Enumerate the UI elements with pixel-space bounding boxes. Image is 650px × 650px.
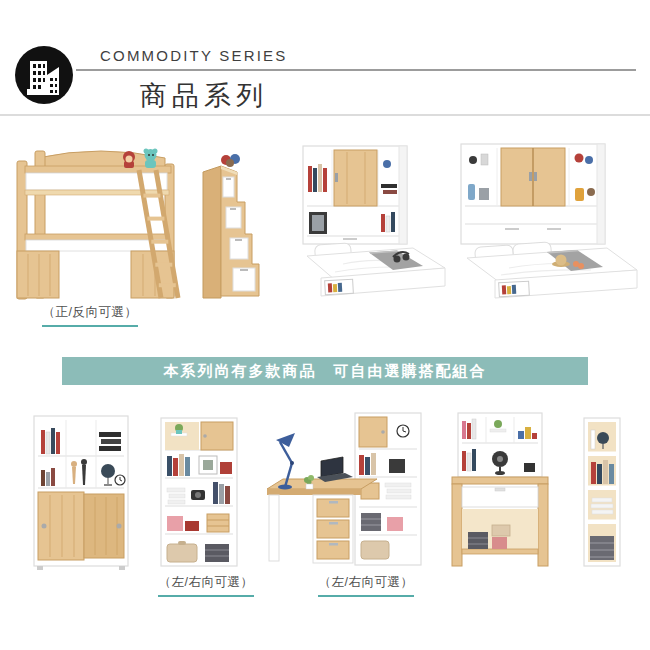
header-rule (76, 69, 636, 71)
series-title-zh: 商品系列 (140, 78, 268, 114)
double-bed-image (443, 140, 641, 306)
caption-row1: （正/反向可選） (30, 304, 150, 327)
catalog-page: COMMODITY SERIES 商品系列 (0, 0, 650, 650)
brand-logo (14, 45, 74, 105)
small-toys-icon (221, 154, 240, 167)
loft-bed-image (15, 138, 197, 304)
single-bed-image (277, 142, 449, 306)
series-title-en: COMMODITY SERIES (100, 47, 287, 64)
buildings-icon (14, 45, 74, 105)
caption-row2-left-text: （左/右向可選） (158, 574, 255, 597)
l-shaped-desk-combo-image (265, 411, 427, 577)
narrow-bookshelf-image (577, 416, 627, 576)
section-divider (0, 114, 650, 116)
stair-storage-cabinet-image (199, 150, 261, 304)
caption-row2-left: （左/右向可選） (152, 574, 260, 597)
sliding-door-bookcase-image (29, 414, 135, 578)
laptop-icon (317, 457, 353, 482)
caption-row1-text: （正/反向可選） (42, 304, 139, 327)
open-bookshelf-image (157, 416, 241, 576)
camera-icon (191, 490, 205, 500)
caption-row2-right-text: （左/右向可選） (318, 574, 415, 597)
desk-with-hutch-image (448, 411, 556, 577)
caption-row2-right: （左/右向可選） (312, 574, 420, 597)
promo-banner: 本系列尚有多款商品 可自由選購搭配組合 (62, 357, 588, 385)
